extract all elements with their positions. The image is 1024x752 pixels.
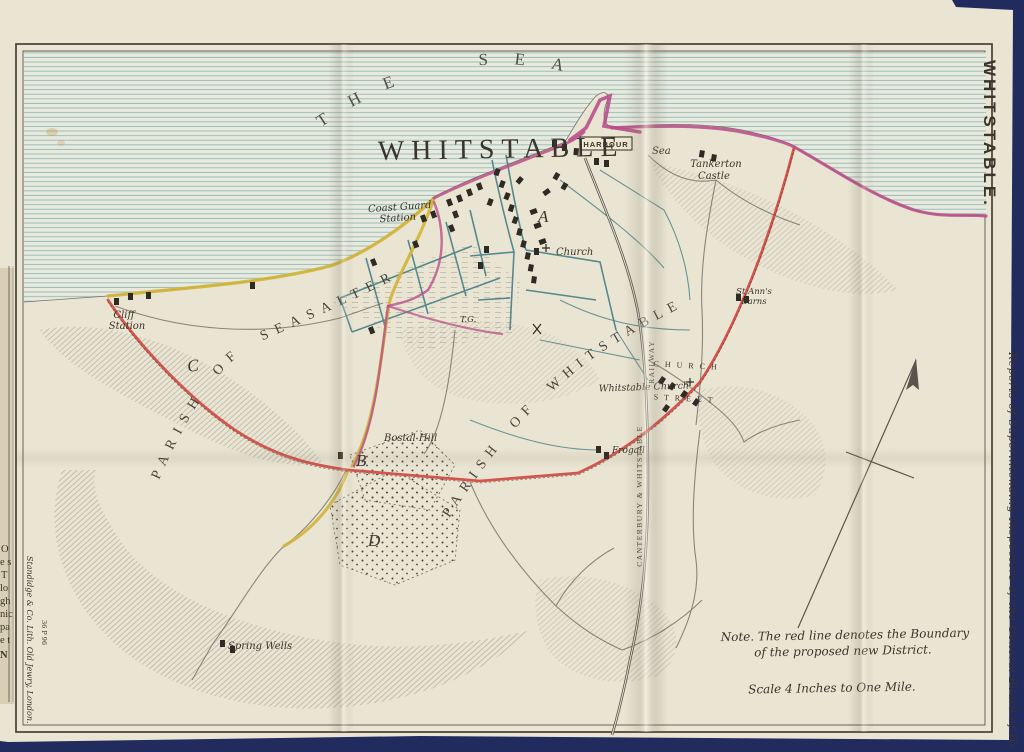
tankerton-label-1: Tankerton <box>690 159 742 170</box>
lithographer-imprint: Standidge & Co. Lith. Old Jewry, London. <box>25 556 34 724</box>
building-footprint <box>531 276 537 284</box>
tankerton-label-2: Castle <box>698 171 730 182</box>
cliff-station-label-1: Cliff <box>113 310 136 321</box>
st-anns-label-2: Barns <box>740 297 767 307</box>
edge-fragment: nic <box>0 609 13 620</box>
spring-wells-label: Spring Wells <box>228 641 292 652</box>
building-footprint <box>220 640 225 647</box>
turnpike-gate-label: T.G. <box>460 315 476 325</box>
marker-d: D <box>367 531 381 550</box>
building-footprint <box>478 262 483 269</box>
church-label: Church <box>556 247 593 258</box>
edge-fragment: e s <box>0 557 11 568</box>
bostal-hill-label: Bostal Hill <box>383 433 437 444</box>
marker-a: A <box>537 207 549 226</box>
building-footprint <box>146 292 151 299</box>
scanned-map-page: O e s T lo gh nic pa e t N <box>0 0 1024 748</box>
imprint-code: 36 P 96 <box>40 620 48 645</box>
edge-fragment: lo <box>0 583 8 594</box>
building-footprint <box>250 282 255 289</box>
edge-fragment: T <box>1 570 8 581</box>
map-title: WHITSTABLE <box>378 132 625 167</box>
page-side-title: WHITSTABLE. <box>980 60 999 208</box>
building-footprint <box>128 293 133 300</box>
cliff-station-label-2: Station <box>109 321 146 332</box>
building-footprint <box>534 248 539 255</box>
edge-fragment: pa <box>0 622 10 633</box>
edge-fragment: O <box>1 544 9 555</box>
report-series-caption: Reports of Superintending Inspectors of … <box>1006 351 1018 748</box>
edge-fragment: gh <box>0 596 11 607</box>
edge-fragment: N <box>0 650 8 661</box>
st-anns-label-1: St Ann's <box>736 287 772 297</box>
building-footprint <box>114 298 119 305</box>
edge-fragment: e t <box>0 635 10 646</box>
whitstable-map-svg: O e s T lo gh nic pa e t N <box>0 0 1024 748</box>
scale-note: Scale 4 Inches to One Mile. <box>748 680 916 697</box>
building-footprint <box>484 246 489 253</box>
